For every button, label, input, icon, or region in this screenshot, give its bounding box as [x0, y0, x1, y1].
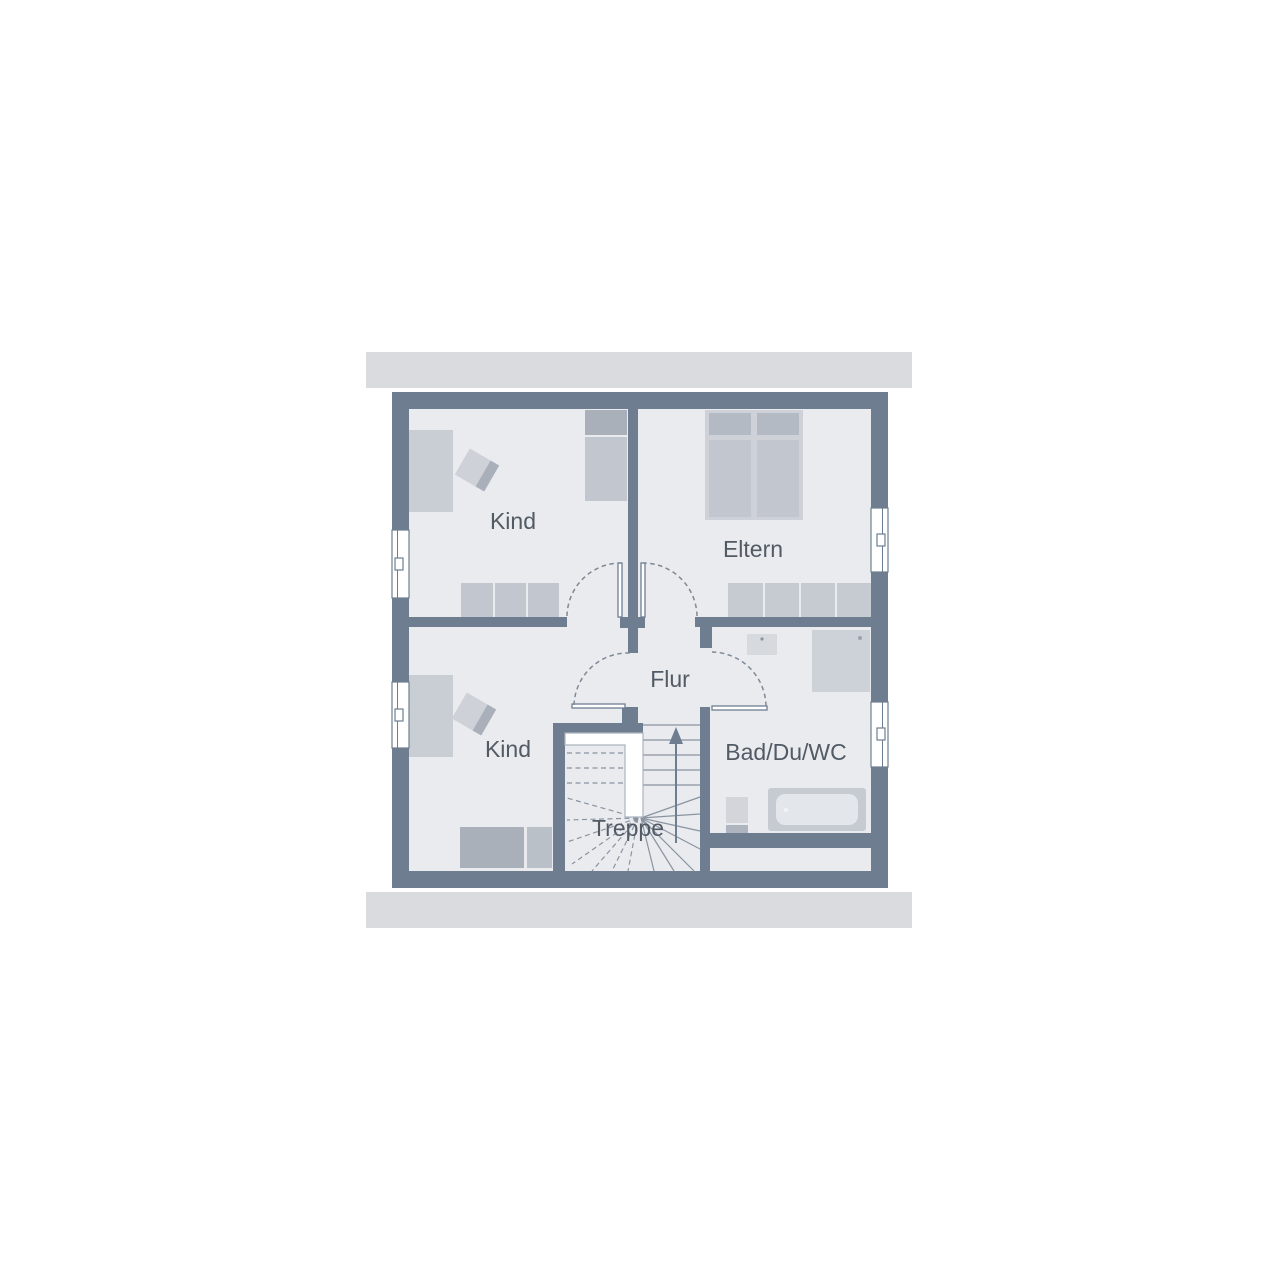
bed-kind-top	[409, 430, 453, 512]
mattress-right	[757, 440, 799, 517]
wall-right	[871, 392, 888, 888]
wall-eltern-bad	[695, 617, 871, 627]
shower-drain	[858, 636, 862, 640]
wardrobe-kind-bottom-1	[460, 827, 524, 868]
wall-kind-eltern	[628, 409, 638, 617]
pillow-left	[709, 413, 751, 435]
room-label-kind-top: Kind	[490, 508, 536, 534]
wall-bad-jamb	[700, 627, 712, 648]
room-label-flur: Flur	[650, 666, 690, 692]
floor-plan: Kind Eltern Kind Flur Bad/Du/WC Treppe	[0, 0, 1280, 1280]
bathtub-faucet	[784, 808, 788, 812]
wall-stair-stub	[622, 707, 638, 723]
wall-center-stub	[628, 628, 638, 653]
pillow-right	[757, 413, 799, 435]
wall-kind-kind	[392, 617, 567, 627]
mattress-left	[709, 440, 751, 517]
wall-left	[392, 392, 409, 888]
wall-top	[392, 392, 888, 409]
washbasin	[747, 634, 777, 655]
wardrobe-kind-bottom-2	[527, 827, 552, 868]
roof-band-top	[366, 352, 912, 388]
window-left-lower	[392, 682, 409, 748]
wall-bottom	[392, 871, 888, 888]
wardrobe-kind-top-lower	[585, 437, 627, 501]
window-right-lower	[871, 702, 888, 767]
floor-plan-drawing: Kind Eltern Kind Flur Bad/Du/WC Treppe	[0, 0, 1280, 1280]
wardrobe-kind-top-upper	[585, 410, 627, 435]
door-leaf-kind-bottom	[572, 704, 625, 708]
wall-stair-left	[553, 723, 565, 871]
wall-stair-top	[553, 723, 643, 733]
wardrobe-kind-top-wall	[461, 583, 559, 617]
room-label-treppe: Treppe	[592, 815, 664, 841]
roof-band-bottom	[366, 892, 912, 928]
wall-bad-bottom	[700, 833, 871, 848]
room-label-kind-bottom: Kind	[485, 736, 531, 762]
window-right-upper	[871, 508, 888, 572]
window-left-upper	[392, 530, 409, 598]
door-leaf-kind-top	[618, 563, 622, 617]
wc-cistern	[726, 825, 748, 833]
bed-kind-bottom	[409, 675, 453, 757]
wc	[726, 797, 748, 823]
room-label-bad: Bad/Du/WC	[725, 739, 846, 765]
door-leaf-eltern	[641, 563, 645, 617]
door-leaf-bad	[712, 706, 767, 710]
room-label-eltern: Eltern	[723, 536, 783, 562]
wall-center-cross	[620, 617, 645, 628]
bathtub-inner	[776, 794, 858, 825]
washbasin-faucet	[760, 637, 763, 640]
